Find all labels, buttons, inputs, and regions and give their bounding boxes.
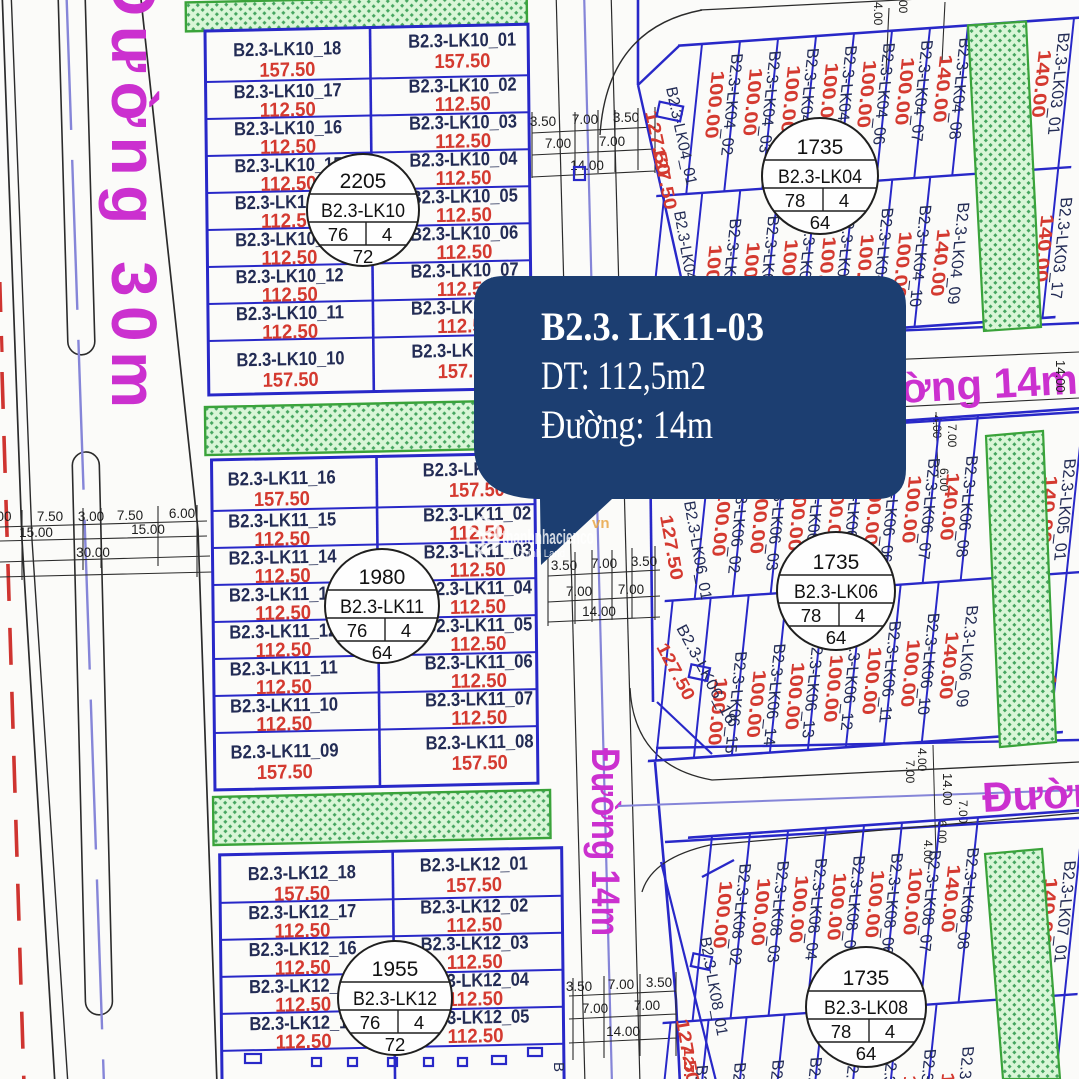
svg-text:7.00: 7.00 xyxy=(545,136,571,151)
svg-text:64: 64 xyxy=(810,212,831,233)
svg-text:7.00: 7.00 xyxy=(582,1001,608,1016)
svg-text:4: 4 xyxy=(382,224,392,245)
svg-text:00: 00 xyxy=(896,0,910,14)
svg-text:2205: 2205 xyxy=(340,170,387,193)
svg-text:4.00: 4.00 xyxy=(871,2,885,26)
svg-text:78: 78 xyxy=(831,1021,852,1042)
svg-text:B2.3-LK08: B2.3-LK08 xyxy=(824,997,908,1019)
svg-text:7.00: 7.00 xyxy=(634,998,660,1013)
svg-text:Đường 14m: Đường 14m xyxy=(583,748,627,936)
svg-text:1735: 1735 xyxy=(797,136,844,159)
svg-text:thanhnhacienco: thanhnhacienco xyxy=(502,527,594,549)
svg-text:15.00: 15.00 xyxy=(19,525,53,540)
svg-text:B2.3-LK04: B2.3-LK04 xyxy=(778,166,862,188)
svg-text:1735: 1735 xyxy=(813,551,860,574)
svg-text:78: 78 xyxy=(785,190,806,211)
svg-text:B2.3. LK11-03: B2.3. LK11-03 xyxy=(541,304,764,349)
svg-text:78: 78 xyxy=(801,605,822,626)
svg-text:3.50: 3.50 xyxy=(613,110,639,125)
svg-text:76: 76 xyxy=(328,224,349,245)
svg-text:4: 4 xyxy=(839,190,849,211)
svg-text:4: 4 xyxy=(855,605,865,626)
svg-text:112.50: 112.50 xyxy=(256,713,312,736)
svg-text:112.50: 112.50 xyxy=(451,707,507,730)
svg-text:157.50: 157.50 xyxy=(446,874,502,897)
svg-text:15.00: 15.00 xyxy=(131,522,165,537)
svg-text:B: B xyxy=(550,1062,567,1072)
svg-text:4: 4 xyxy=(885,1021,895,1042)
svg-text:14.00: 14.00 xyxy=(940,773,955,806)
svg-text:B2.3-LK10_10: B2.3-LK10_10 xyxy=(236,348,344,371)
svg-text:B2.3-LK10_01: B2.3-LK10_01 xyxy=(408,29,517,52)
svg-text:14.00: 14.00 xyxy=(570,158,604,173)
svg-text:B2.3-LK12: B2.3-LK12 xyxy=(353,988,437,1010)
svg-text:by Chính Land: by Chính Land xyxy=(503,548,565,560)
svg-text:B2.3-LK11_16: B2.3-LK11_16 xyxy=(228,467,336,490)
svg-text:3.50: 3.50 xyxy=(551,558,577,573)
svg-text:127.: 127. xyxy=(680,1048,697,1077)
svg-text:B2.3-LK12_18: B2.3-LK12_18 xyxy=(248,862,356,885)
svg-text:7.00: 7.00 xyxy=(572,112,598,127)
svg-text:3.00: 3.00 xyxy=(78,509,104,524)
svg-text:7.50: 7.50 xyxy=(117,508,143,523)
svg-text:64: 64 xyxy=(856,1043,877,1064)
svg-text:72: 72 xyxy=(385,1034,406,1055)
svg-text:7.50: 7.50 xyxy=(37,509,63,524)
svg-text:1955: 1955 xyxy=(372,958,419,981)
svg-text:1735: 1735 xyxy=(843,967,890,990)
svg-text:7.00: 7.00 xyxy=(608,977,634,992)
svg-text:7.00: 7.00 xyxy=(618,582,644,597)
svg-text:4: 4 xyxy=(414,1012,424,1033)
svg-text:157.50: 157.50 xyxy=(257,761,313,784)
svg-text:B2.3-LK06: B2.3-LK06 xyxy=(794,581,878,603)
svg-text:157.50: 157.50 xyxy=(259,59,315,82)
svg-text:vn: vn xyxy=(592,515,610,532)
svg-text:30.00: 30.00 xyxy=(76,545,110,560)
svg-text:112.50: 112.50 xyxy=(262,321,318,344)
svg-text:00: 00 xyxy=(0,509,12,524)
svg-text:157.50: 157.50 xyxy=(434,50,490,73)
svg-text:B2.3-LK11: B2.3-LK11 xyxy=(340,596,424,618)
svg-text:76: 76 xyxy=(347,620,368,641)
svg-text:7.00: 7.00 xyxy=(566,584,592,599)
svg-text:B2.3-LK10_18: B2.3-LK10_18 xyxy=(233,38,341,61)
svg-text:7.00: 7.00 xyxy=(599,134,625,149)
svg-text:Đường: 14m: Đường: 14m xyxy=(541,402,713,447)
svg-text:76: 76 xyxy=(360,1012,381,1033)
svg-text:7.00: 7.00 xyxy=(903,760,917,784)
svg-text:3.50: 3.50 xyxy=(566,979,592,994)
svg-text:B2.3-LK11_09: B2.3-LK11_09 xyxy=(230,740,338,763)
svg-text:157.50: 157.50 xyxy=(452,752,508,775)
svg-text:157.50: 157.50 xyxy=(254,488,310,511)
svg-text:B2.3-LK11_08: B2.3-LK11_08 xyxy=(425,731,533,754)
svg-text:14.00: 14.00 xyxy=(1053,360,1068,393)
svg-text:3.50: 3.50 xyxy=(646,975,672,990)
svg-text:4: 4 xyxy=(401,620,411,641)
svg-text:DT: 112,5m2: DT: 112,5m2 xyxy=(541,353,706,398)
svg-text:72: 72 xyxy=(353,246,374,267)
svg-text:3.50: 3.50 xyxy=(530,114,556,129)
svg-text:64: 64 xyxy=(826,627,847,648)
svg-text:112.50: 112.50 xyxy=(276,1031,332,1054)
svg-text:6.00: 6.00 xyxy=(169,506,195,521)
svg-text:7.00: 7.00 xyxy=(945,424,959,448)
svg-text:157.50: 157.50 xyxy=(263,369,319,392)
svg-text:3.50: 3.50 xyxy=(631,554,657,569)
svg-text:B2.3-LK12_01: B2.3-LK12_01 xyxy=(420,853,529,876)
svg-text:64: 64 xyxy=(372,642,393,663)
svg-text:112.50: 112.50 xyxy=(448,1025,504,1048)
svg-text:7.00: 7.00 xyxy=(956,800,970,824)
svg-text:14.00: 14.00 xyxy=(582,604,616,619)
svg-text:B2.3-LK10: B2.3-LK10 xyxy=(321,200,405,222)
svg-text:7.00: 7.00 xyxy=(591,556,617,571)
svg-text:1980: 1980 xyxy=(359,566,406,589)
svg-text:14.00: 14.00 xyxy=(606,1024,640,1039)
